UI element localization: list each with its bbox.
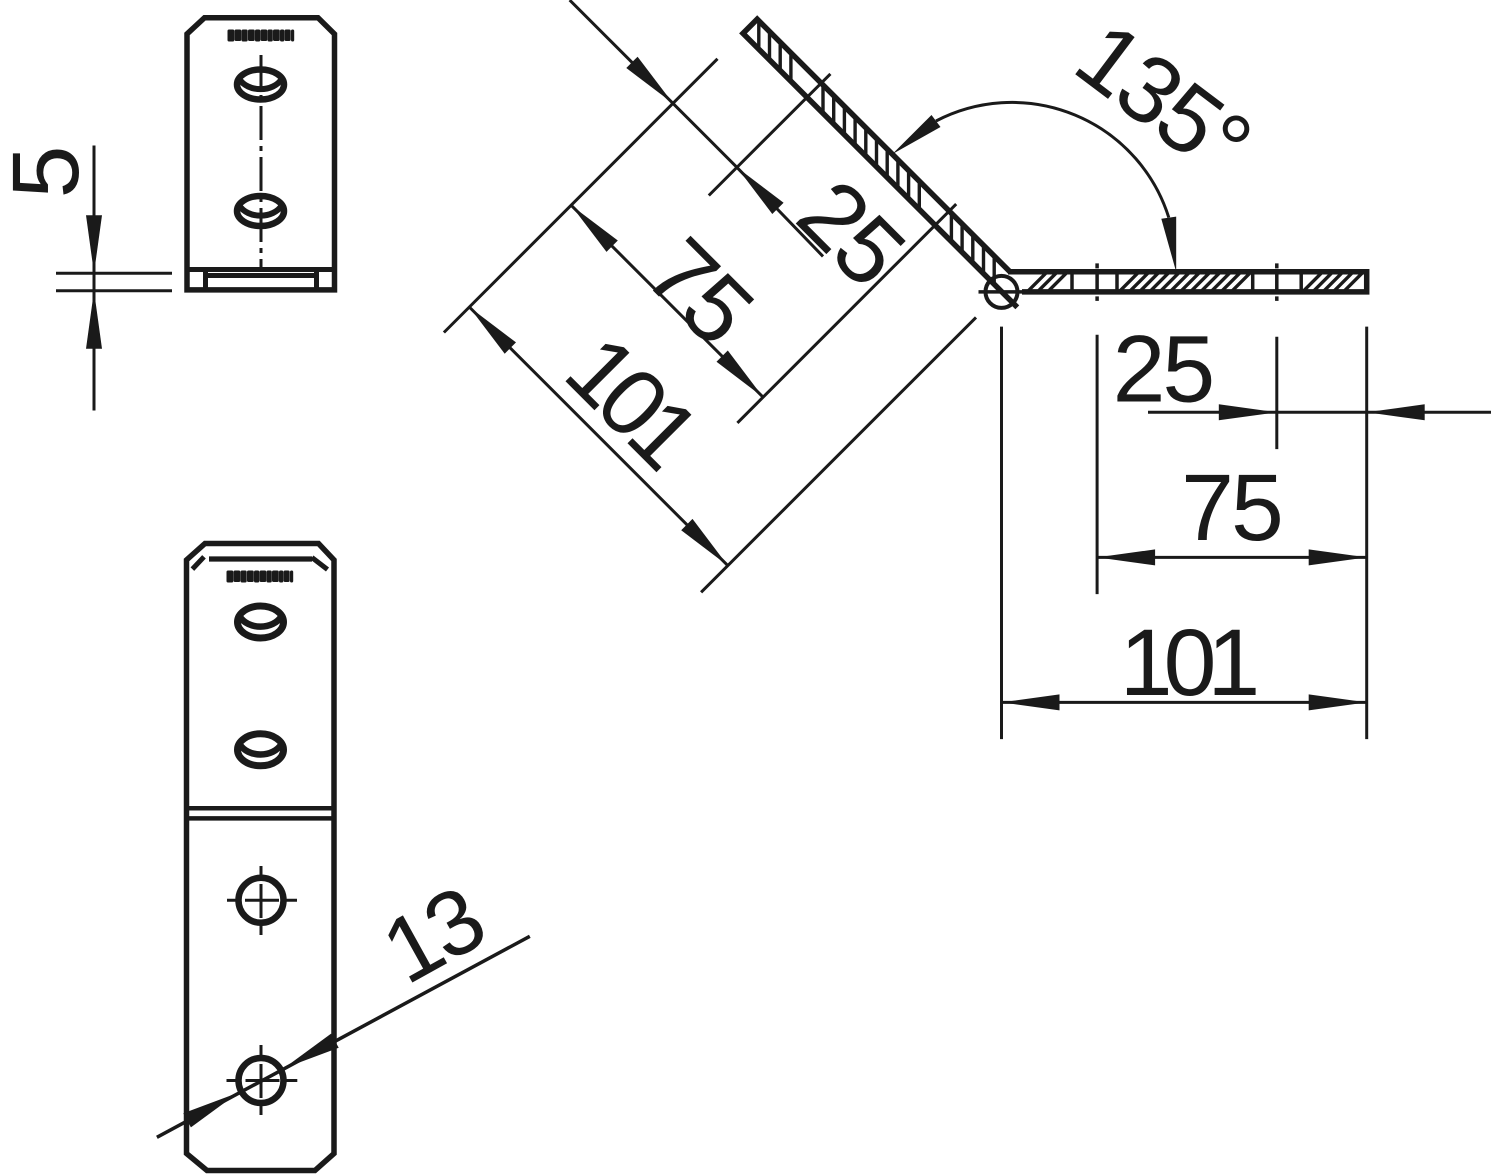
svg-text:25: 25: [1113, 317, 1213, 423]
svg-text:101: 101: [1120, 610, 1257, 716]
svg-text:5: 5: [0, 146, 99, 199]
svg-text:75: 75: [1181, 455, 1281, 561]
